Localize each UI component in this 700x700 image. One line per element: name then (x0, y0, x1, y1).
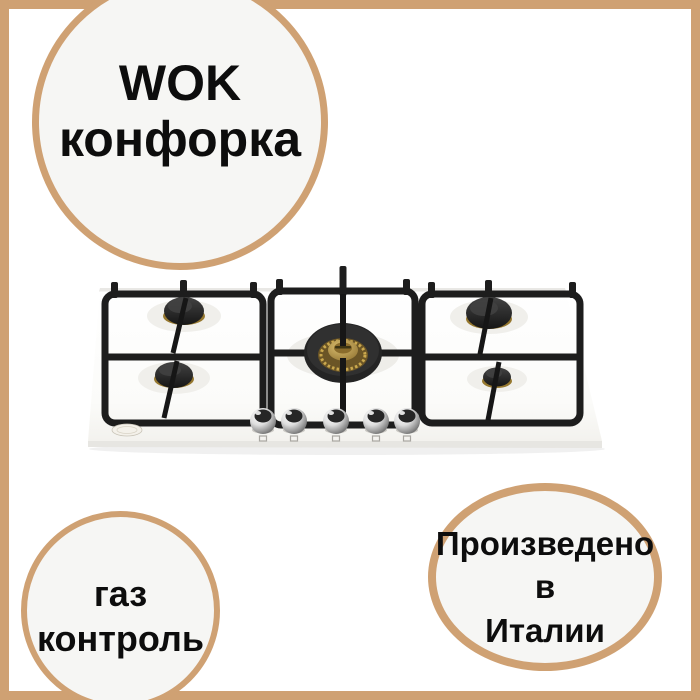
badge-gas-line1: газ (37, 571, 204, 616)
badge-gas-control: газ контроль (21, 511, 220, 700)
badge-wok-line1: WOK (59, 55, 301, 111)
promo-image: WOK конфорка газ контроль Произведено в … (0, 0, 700, 700)
badge-wok-line2: конфорка (59, 111, 301, 167)
badge-made-in-italy: Произведено в Италии (428, 483, 662, 671)
badge-italy-line1: Произведено (436, 522, 654, 566)
badge-italy-line2: в (436, 565, 654, 609)
badge-wok-text: WOK конфорка (59, 55, 301, 167)
badge-italy-text: Произведено в Италии (436, 522, 654, 653)
product-photo-gas-hob (85, 258, 630, 458)
badge-gas-text: газ контроль (37, 571, 204, 661)
badge-gas-line2: контроль (37, 616, 204, 661)
badge-italy-line3: Италии (436, 609, 654, 653)
brand-logo (112, 424, 142, 436)
